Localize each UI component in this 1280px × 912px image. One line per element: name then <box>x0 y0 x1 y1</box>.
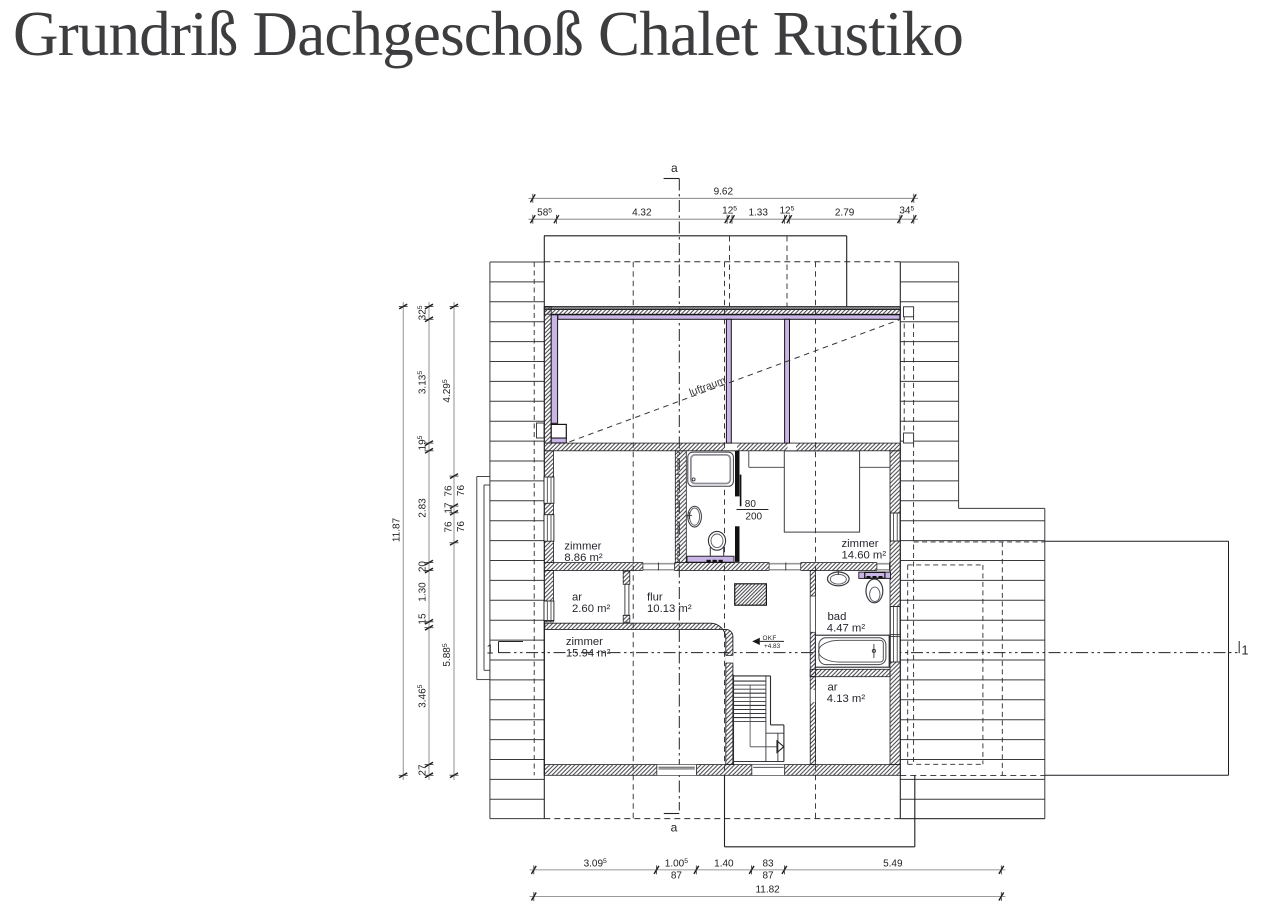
svg-text:76: 76 <box>443 485 454 497</box>
svg-text:11.82: 11.82 <box>755 885 780 896</box>
svg-text:+4.83: +4.83 <box>764 643 781 650</box>
svg-text:1: 1 <box>487 643 494 657</box>
svg-text:a: a <box>671 820 678 834</box>
svg-text:1.33: 1.33 <box>748 208 768 219</box>
svg-text:27: 27 <box>417 764 428 776</box>
svg-text:flur: flur <box>647 592 663 604</box>
svg-text:10.13 m²: 10.13 m² <box>647 603 692 615</box>
svg-text:15.94 m²: 15.94 m² <box>566 648 611 660</box>
svg-text:80: 80 <box>745 499 757 510</box>
svg-text:1.30: 1.30 <box>417 582 428 602</box>
svg-text:5.49: 5.49 <box>883 858 903 869</box>
svg-text:Grundriß Dachgeschoß Chalet Ru: Grundriß Dachgeschoß Chalet Rustiko <box>13 0 963 69</box>
svg-text:1.40: 1.40 <box>714 858 734 869</box>
svg-text:bad: bad <box>828 611 847 623</box>
svg-text:9.62: 9.62 <box>714 187 734 198</box>
svg-text:200: 200 <box>745 512 762 523</box>
svg-text:87: 87 <box>762 871 774 882</box>
svg-text:76: 76 <box>443 521 454 533</box>
svg-text:14.60 m²: 14.60 m² <box>842 550 887 562</box>
svg-text:2.79: 2.79 <box>835 208 855 219</box>
svg-text:8.86 m²: 8.86 m² <box>564 552 603 564</box>
svg-text:zimmer: zimmer <box>842 538 879 550</box>
svg-text:ar: ar <box>828 682 838 694</box>
svg-text:zimmer: zimmer <box>564 541 601 553</box>
svg-text:2.83: 2.83 <box>417 498 428 518</box>
svg-text:1: 1 <box>1242 644 1249 658</box>
svg-text:OKF: OKF <box>763 635 777 642</box>
svg-text:20: 20 <box>417 561 428 573</box>
svg-text:4.47 m²: 4.47 m² <box>827 623 866 635</box>
svg-text:11.87: 11.87 <box>391 517 402 542</box>
svg-text:4.13 m²: 4.13 m² <box>827 693 866 705</box>
svg-text:87: 87 <box>671 871 683 882</box>
svg-text:a: a <box>671 161 678 175</box>
svg-text:76: 76 <box>456 521 467 533</box>
svg-text:83: 83 <box>762 858 774 869</box>
svg-text:ar: ar <box>572 592 582 604</box>
svg-text:76: 76 <box>456 485 467 497</box>
svg-text:17: 17 <box>443 502 454 514</box>
svg-text:15: 15 <box>417 613 428 625</box>
svg-text:4.32: 4.32 <box>632 208 652 219</box>
svg-text:zimmer: zimmer <box>566 636 603 648</box>
svg-text:2.60 m²: 2.60 m² <box>572 603 611 615</box>
